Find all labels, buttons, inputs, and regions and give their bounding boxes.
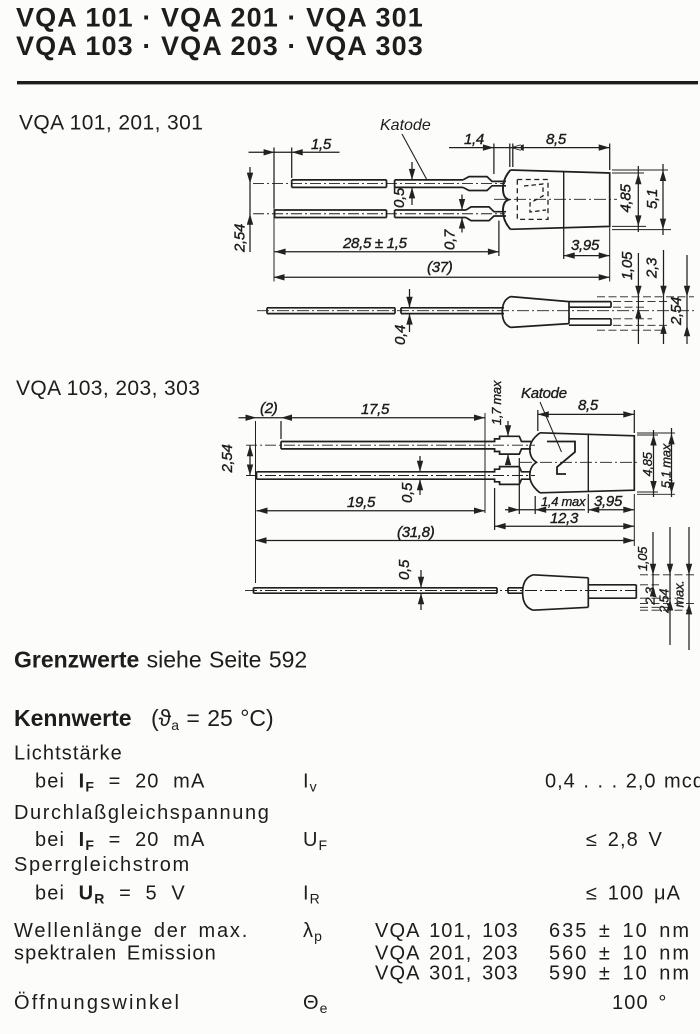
svg-text:1,05: 1,05 xyxy=(635,546,650,571)
svg-text:Katode: Katode xyxy=(380,117,431,134)
svg-text:0,5: 0,5 xyxy=(391,187,408,208)
svg-text:VQA 101 · VQA 201 · VQA 301: VQA 101 · VQA 201 · VQA 301 xyxy=(16,3,424,33)
svg-text:4,85: 4,85 xyxy=(618,184,635,213)
svg-text:2,3: 2,3 xyxy=(644,257,661,279)
svg-text:8,5: 8,5 xyxy=(546,131,567,148)
svg-text:2,54: 2,54 xyxy=(219,445,236,474)
svg-text:590 ± 10 nm: 590 ± 10 nm xyxy=(549,963,691,985)
svg-text:2,3: 2,3 xyxy=(643,586,658,605)
svg-text:Lichtstärke: Lichtstärke xyxy=(14,743,123,765)
svg-text:≤ 2,8 V: ≤ 2,8 V xyxy=(586,829,663,851)
svg-text:(31,8): (31,8) xyxy=(397,524,435,541)
svg-text:≤ 100 μA: ≤ 100 μA xyxy=(586,883,681,905)
svg-text:3,95: 3,95 xyxy=(571,237,600,254)
svg-text:0,4: 0,4 xyxy=(392,325,409,345)
svg-text:12,3: 12,3 xyxy=(550,510,579,527)
svg-text:0,4 . . . 2,0 mcd: 0,4 . . . 2,0 mcd xyxy=(545,771,700,793)
svg-text:max.: max. xyxy=(672,581,687,608)
svg-text:VQA 201, 203: VQA 201, 203 xyxy=(375,943,519,965)
svg-text:VQA 103, 203, 303: VQA 103, 203, 303 xyxy=(16,377,200,400)
svg-text:28,5 ± 1,5: 28,5 ± 1,5 xyxy=(342,235,408,252)
svg-text:2,54: 2,54 xyxy=(232,224,249,253)
svg-text:1,4 max: 1,4 max xyxy=(541,494,586,509)
svg-text:Grenzwerte siehe Seite 592: Grenzwerte siehe Seite 592 xyxy=(14,647,307,673)
svg-text:8,5: 8,5 xyxy=(578,397,599,414)
svg-text:VQA 101, 201, 301: VQA 101, 201, 301 xyxy=(19,112,203,135)
svg-text:17,5: 17,5 xyxy=(361,401,390,418)
svg-text:0,5: 0,5 xyxy=(396,559,413,580)
svg-text:1,7 max: 1,7 max xyxy=(489,380,504,425)
svg-text:Durchlaßgleichspannung: Durchlaßgleichspannung xyxy=(14,802,270,824)
svg-text:spektralen Emission: spektralen Emission xyxy=(14,943,217,965)
svg-text:1,5: 1,5 xyxy=(311,136,332,153)
svg-text:1,4: 1,4 xyxy=(464,131,484,148)
svg-text:0,5: 0,5 xyxy=(399,482,416,503)
svg-text:1,05: 1,05 xyxy=(619,251,636,280)
svg-text:5,1 max.: 5,1 max. xyxy=(659,441,674,488)
svg-text:VQA 101, 103: VQA 101, 103 xyxy=(375,920,519,942)
svg-text:bei UR = 5 V: bei UR = 5 V xyxy=(35,883,186,907)
svg-text:4,85: 4,85 xyxy=(640,451,655,476)
svg-text:Öffnungswinkel: Öffnungswinkel xyxy=(14,992,181,1014)
svg-text:VQA 103 · VQA 203 · VQA 303: VQA 103 · VQA 203 · VQA 303 xyxy=(16,31,424,61)
svg-text:bei IF = 20 mA: bei IF = 20 mA xyxy=(35,829,205,853)
svg-text:Sperrgleichstrom: Sperrgleichstrom xyxy=(14,854,191,876)
svg-text:Kennwerte (ϑa = 25 °C): Kennwerte (ϑa = 25 °C) xyxy=(14,705,274,733)
svg-text:100 °: 100 ° xyxy=(612,992,667,1014)
svg-text:19,5: 19,5 xyxy=(347,494,376,511)
svg-text:635 ± 10 nm: 635 ± 10 nm xyxy=(549,920,691,942)
svg-text:bei IF = 20 mA: bei IF = 20 mA xyxy=(35,771,205,795)
svg-text:2,54: 2,54 xyxy=(657,589,672,614)
svg-text:2,54: 2,54 xyxy=(668,297,685,326)
svg-text:(37): (37) xyxy=(427,259,453,276)
svg-text:(2): (2) xyxy=(260,400,278,417)
svg-text:Wellenlänge der max.: Wellenlänge der max. xyxy=(14,920,249,942)
svg-text:560 ± 10 nm: 560 ± 10 nm xyxy=(549,943,691,965)
svg-text:Katode: Katode xyxy=(521,385,567,402)
svg-text:5,1: 5,1 xyxy=(644,189,661,209)
svg-text:3,95: 3,95 xyxy=(594,493,623,510)
svg-text:VQA 301, 303: VQA 301, 303 xyxy=(375,963,519,985)
svg-text:0,7: 0,7 xyxy=(442,229,459,250)
